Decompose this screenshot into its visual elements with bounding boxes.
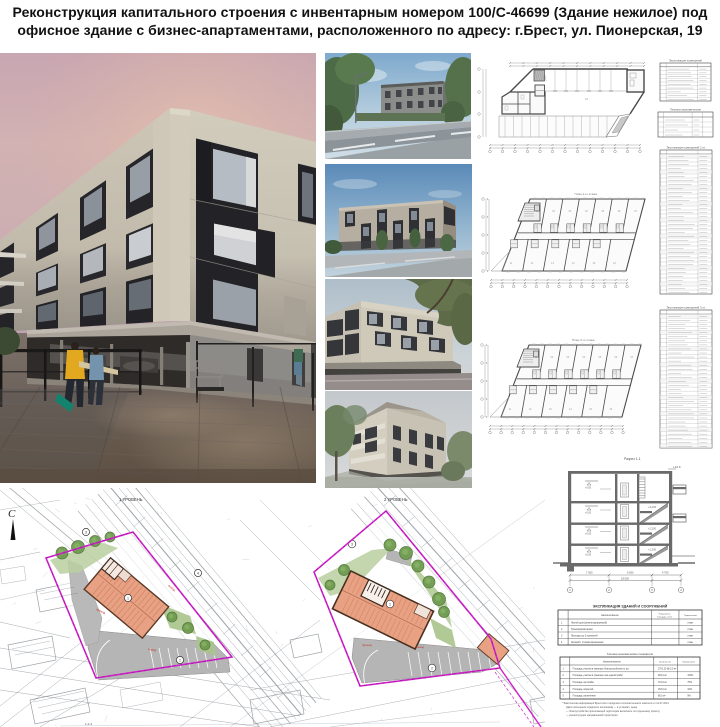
svg-text:153,0 м²: 153,0 м² <box>658 688 667 691</box>
svg-text:— реконструкция направленной т: — реконструкция направленной территории <box>566 714 618 717</box>
svg-text:Примечание: Примечание <box>684 615 697 617</box>
svg-text:Разработка: Разработка <box>659 614 671 616</box>
svg-text:1: 1 <box>127 596 129 600</box>
svg-text:100%: 100% <box>687 675 693 677</box>
svg-text:план: план <box>688 628 694 631</box>
svg-text:904,0 м²: 904,0 м² <box>658 674 667 677</box>
svg-text:2 УРОВЕНЬ: 2 УРОВЕНЬ <box>384 497 408 502</box>
svg-text:9%: 9% <box>687 696 690 698</box>
svg-text:План 3-го этажа: План 3-го этажа <box>572 338 595 342</box>
svg-text:6 000: 6 000 <box>627 571 634 575</box>
svg-text:+3,200: +3,200 <box>648 505 657 509</box>
svg-text:3: 3 <box>651 588 653 592</box>
svg-text:4: 4 <box>197 571 199 575</box>
svg-text:1 УРОВЕНЬ: 1 УРОВЕНЬ <box>119 497 143 502</box>
svg-text:план: план <box>688 622 694 625</box>
svg-text:Экспликация помещений 2 эт.: Экспликация помещений 2 эт. <box>667 146 706 150</box>
svg-text:Экспликация помещений: Экспликация помещений <box>669 59 702 63</box>
svg-text:721,6 м²: 721,6 м² <box>658 681 667 684</box>
svg-text:4 700: 4 700 <box>662 571 669 575</box>
svg-text:Площадь покрытий: Площадь покрытий <box>573 688 594 691</box>
svg-text:Площадь участка в границах зем: Площадь участка в границах зем.единой ра… <box>573 674 625 677</box>
svg-text:Проезды до 3 проезжей: Проезды до 3 проезжей <box>571 635 598 638</box>
svg-text:* Фактическая информация Брест: * Фактическая информация Брестского горо… <box>562 702 669 705</box>
svg-text:Площадь озеленения: Площадь озеленения <box>573 696 597 698</box>
svg-text:3: 3 <box>351 542 353 546</box>
svg-text:16%: 16% <box>687 689 692 691</box>
svg-text:Наименование: Наименование <box>601 613 620 617</box>
svg-text:план: план <box>688 641 694 644</box>
svg-text:Примечание: Примечание <box>682 661 695 663</box>
svg-text:план: план <box>688 635 694 638</box>
svg-text:Разрез 1-1: Разрез 1-1 <box>624 457 641 461</box>
svg-text:2: 2 <box>431 666 433 670</box>
svg-text:Трансформаторная: Трансформаторная <box>571 628 593 631</box>
svg-text:Площадь участка в границах бла: Площадь участка в границах благоустройст… <box>573 667 630 670</box>
svg-text:1: 1 <box>569 588 571 592</box>
svg-text:Площадь застройки: Площадь застройки <box>573 681 595 684</box>
svg-text:Технико-экономические: Технико-экономические <box>670 108 701 112</box>
svg-text:7 300: 7 300 <box>586 571 593 575</box>
svg-text:+2,200: +2,200 <box>648 527 657 531</box>
svg-text:Количество: Количество <box>659 661 672 663</box>
svg-text:Экспликация помещений 3 эт.: Экспликация помещений 3 эт. <box>667 306 706 310</box>
svg-text:C: C <box>8 508 16 520</box>
svg-text:площадь, план: площадь, план <box>657 617 673 619</box>
svg-text:(Дата посещения городского исп: (Дата посещения городского исполкома) — … <box>566 706 637 709</box>
svg-text:+0,00: +0,00 <box>585 533 592 536</box>
svg-text:Автомоб. стоянка временная: Автомоб. стоянка временная <box>571 641 604 644</box>
svg-text:Жилой дом (реконструируемый): Жилой дом (реконструируемый) <box>571 622 607 625</box>
svg-text:въезд: въезд <box>416 645 424 649</box>
svg-text:2: 2 <box>608 588 610 592</box>
svg-text:Наименование: Наименование <box>603 659 622 663</box>
svg-text:+1,200: +1,200 <box>648 548 657 552</box>
svg-text:+0,00: +0,00 <box>585 487 592 490</box>
svg-text:1: 1 <box>389 602 391 606</box>
svg-text:+12,6: +12,6 <box>673 465 681 469</box>
svg-text:План 2-го этажа: План 2-го этажа <box>575 192 598 196</box>
svg-text:18: 18 <box>585 97 588 101</box>
svg-text:1-2-3: 1-2-3 <box>85 722 92 726</box>
svg-text:— благоустройство прилегающей: — благоустройство прилегающей территории… <box>566 710 661 713</box>
svg-text:75%: 75% <box>687 682 692 684</box>
svg-text:+0,00: +0,00 <box>585 554 592 557</box>
svg-text:4: 4 <box>680 588 682 592</box>
svg-text:ЭКСПЛИКАЦИЯ ЗДАНИЙ И СООРУЖЕНИ: ЭКСПЛИКАЦИЯ ЗДАНИЙ И СООРУЖЕНИЙ <box>593 605 668 609</box>
svg-text:Технико-экономические показате: Технико-экономические показатели <box>607 652 654 656</box>
svg-text:2: 2 <box>179 658 181 662</box>
svg-text:2791,23 Вт/2,0 м²: 2791,23 Вт/2,0 м² <box>658 667 676 670</box>
svg-text:18 000: 18 000 <box>621 576 629 580</box>
svg-text:проезд: проезд <box>362 643 372 647</box>
svg-text:+0,00: +0,00 <box>585 512 592 515</box>
svg-text:86,0 м²: 86,0 м² <box>658 695 666 698</box>
svg-text:3: 3 <box>85 530 87 534</box>
